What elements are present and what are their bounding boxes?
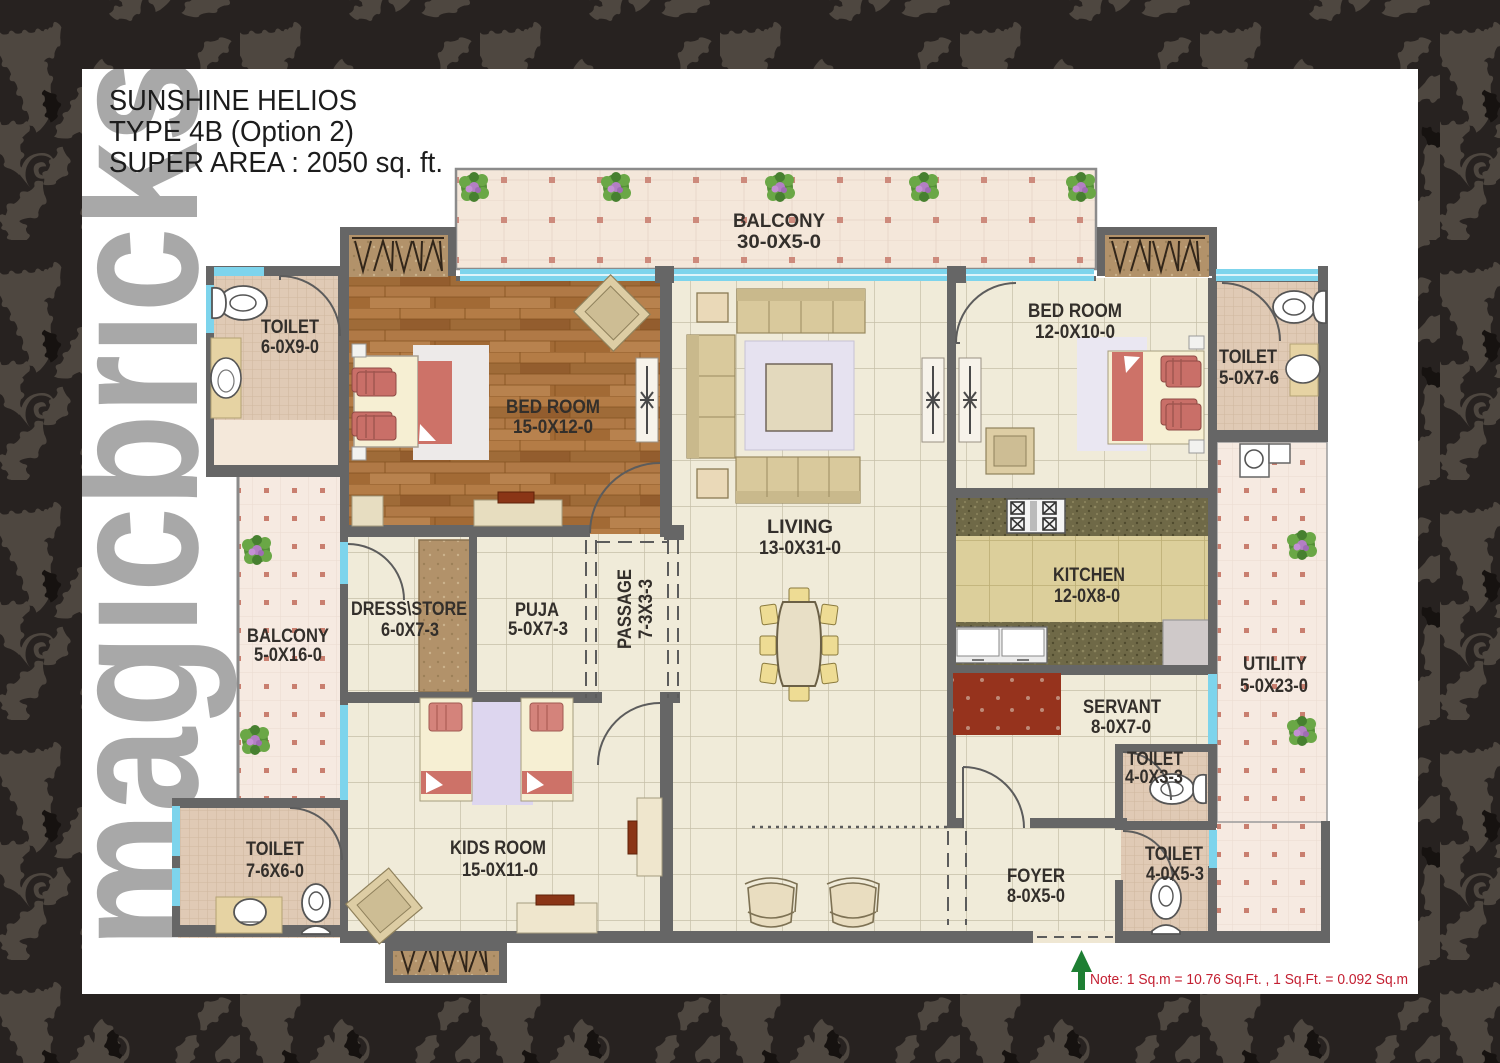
svg-text:LIVING: LIVING — [767, 517, 833, 538]
svg-text:BALCONY: BALCONY — [733, 211, 825, 232]
svg-text:BED ROOM: BED ROOM — [1028, 301, 1122, 322]
svg-text:TOILET: TOILET — [1145, 844, 1203, 865]
svg-text:6-0X7-3: 6-0X7-3 — [381, 620, 439, 641]
svg-text:TOILET: TOILET — [246, 839, 304, 860]
svg-text:DRESS\STORE: DRESS\STORE — [351, 599, 467, 620]
svg-text:7-6X6-0: 7-6X6-0 — [246, 861, 304, 882]
svg-text:PASSAGE: PASSAGE — [615, 569, 636, 649]
svg-text:4-0X5-3: 4-0X5-3 — [1146, 864, 1204, 885]
svg-text:TYPE 4B (Option 2): TYPE 4B (Option 2) — [109, 116, 354, 148]
svg-text:UTILITY: UTILITY — [1243, 654, 1307, 675]
svg-text:SUPER AREA : 2050 sq. ft.: SUPER AREA : 2050 sq. ft. — [109, 147, 443, 179]
svg-text:6-0X9-0: 6-0X9-0 — [261, 337, 319, 358]
svg-text:KITCHEN: KITCHEN — [1053, 565, 1125, 586]
svg-text:15-0X11-0: 15-0X11-0 — [462, 860, 538, 881]
svg-text:13-0X31-0: 13-0X31-0 — [759, 538, 841, 559]
svg-text:15-0X12-0: 15-0X12-0 — [513, 417, 593, 438]
svg-text:SERVANT: SERVANT — [1083, 697, 1161, 718]
svg-text:KIDS ROOM: KIDS ROOM — [450, 838, 546, 859]
svg-text:12-0X10-0: 12-0X10-0 — [1035, 322, 1115, 343]
svg-text:PUJA: PUJA — [515, 600, 559, 621]
svg-text:BED ROOM: BED ROOM — [506, 397, 600, 418]
svg-text:30-0X5-0: 30-0X5-0 — [737, 232, 821, 253]
svg-text:5-0X7-6: 5-0X7-6 — [1219, 368, 1279, 389]
svg-text:12-0X8-0: 12-0X8-0 — [1054, 586, 1120, 607]
svg-text:Note: 1 Sq.m = 10.76 Sq.Ft. ,: Note: 1 Sq.m = 10.76 Sq.Ft. , 1 Sq.Ft. =… — [1090, 972, 1408, 988]
svg-text:8-0X7-0: 8-0X7-0 — [1091, 717, 1151, 738]
svg-text:TOILET: TOILET — [261, 317, 319, 338]
svg-text:BALCONY: BALCONY — [247, 626, 329, 647]
svg-text:7-3X3-3: 7-3X3-3 — [636, 579, 657, 639]
svg-text:FOYER: FOYER — [1007, 866, 1065, 887]
svg-text:SUNSHINE HELIOS: SUNSHINE HELIOS — [109, 85, 357, 117]
svg-text:5-0X23-0: 5-0X23-0 — [1240, 676, 1308, 697]
svg-text:5-0X16-0: 5-0X16-0 — [254, 645, 322, 666]
svg-text:8-0X5-0: 8-0X5-0 — [1007, 886, 1065, 907]
svg-text:4-0X3-3: 4-0X3-3 — [1125, 767, 1183, 788]
svg-text:TOILET: TOILET — [1219, 347, 1277, 368]
svg-text:5-0X7-3: 5-0X7-3 — [508, 619, 568, 640]
